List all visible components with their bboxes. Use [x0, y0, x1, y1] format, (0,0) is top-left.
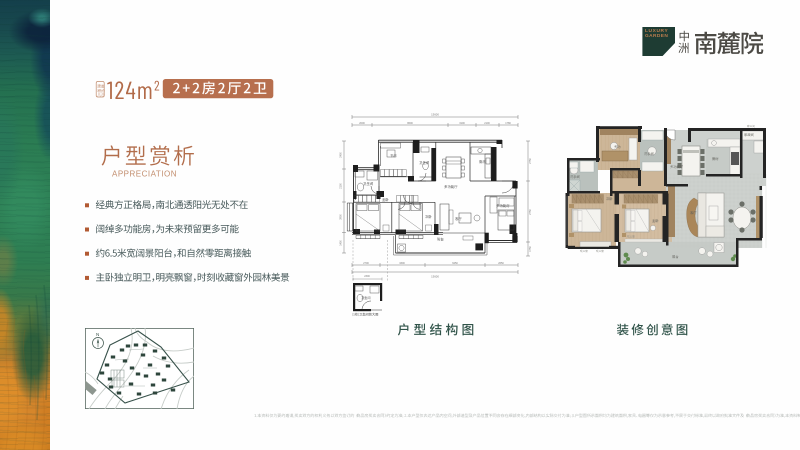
svg-text:2400: 2400 [340, 152, 343, 158]
svg-text:1750: 1750 [529, 246, 532, 252]
svg-text:2000: 2000 [359, 122, 365, 125]
svg-text:1780: 1780 [505, 122, 511, 125]
svg-text:3300: 3300 [399, 262, 405, 265]
svg-text:2750: 2750 [529, 158, 532, 164]
svg-text:GARDEN: GARDEN [645, 33, 668, 39]
svg-text:3900: 3900 [340, 214, 343, 220]
svg-text:3100: 3100 [459, 122, 465, 125]
svg-text:13600: 13600 [431, 113, 439, 117]
svg-text:2300: 2300 [364, 275, 370, 278]
svg-text:1450: 1450 [340, 240, 343, 246]
svg-text:13600: 13600 [431, 275, 439, 279]
svg-text:2650: 2650 [498, 262, 504, 265]
svg-text:2100: 2100 [484, 122, 490, 125]
svg-text:8600: 8600 [407, 122, 413, 125]
svg-text:2700: 2700 [363, 262, 369, 265]
svg-text:2750: 2750 [529, 209, 532, 215]
svg-text:2100: 2100 [340, 183, 343, 189]
svg-text:N: N [96, 332, 99, 337]
svg-text:6250: 6250 [452, 262, 458, 265]
